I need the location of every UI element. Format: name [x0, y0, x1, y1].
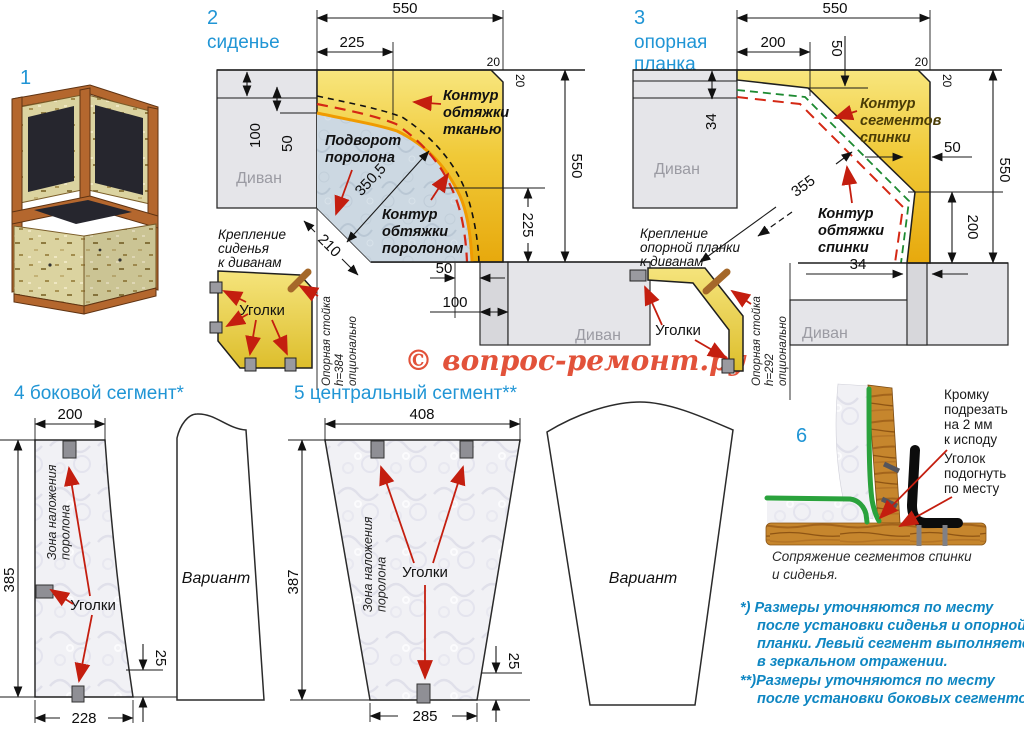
sofa-label: Диван	[654, 161, 700, 178]
corner-bracket	[36, 585, 53, 598]
svg-text:550: 550	[392, 0, 417, 17]
svg-text:20: 20	[513, 74, 527, 88]
inset-title: Крепление сиденья к диванам	[218, 227, 290, 270]
variant-label: Вариант	[182, 570, 250, 587]
section-3-support-plank: 3 опорная планка Диван Диван 550	[630, 0, 1013, 400]
corner-bracket	[72, 686, 84, 702]
furniture-blueprint-canvas: 1 2 сиденье Диван Ди	[0, 0, 1024, 739]
section-4-title: 4 боковой сегмент*	[14, 383, 185, 404]
corners-label: Уголки	[402, 564, 448, 581]
sofa-bottom-right-arm	[480, 262, 508, 345]
sofa-label: Диван	[236, 170, 282, 187]
corner-bracket	[210, 282, 222, 293]
svg-text:200: 200	[760, 34, 785, 51]
section-5-title: 5 центральный сегмент**	[294, 383, 518, 404]
svg-text:550: 550	[568, 153, 585, 178]
corner-bracket	[285, 358, 296, 371]
dim-550-right: 550	[565, 70, 585, 262]
svg-text:34: 34	[703, 113, 720, 130]
corners-label: Уголки	[70, 597, 116, 614]
svg-text:225: 225	[519, 212, 536, 237]
dim-550-right: 550	[993, 70, 1013, 263]
label-foam-fold: Подворот поролона	[325, 133, 405, 166]
section-2-number: 2	[207, 7, 218, 29]
svg-text:355: 355	[788, 172, 818, 200]
sofa-top-left	[633, 70, 737, 208]
corner-bracket	[417, 684, 430, 703]
arrow-to-cover-contour	[847, 167, 852, 203]
section-1-number: 1	[20, 67, 31, 89]
variant-label: Вариант	[609, 570, 677, 587]
support-leg-note: Опорная стойка h=384 опционально	[321, 293, 359, 386]
corner-bracket	[63, 441, 76, 458]
section-6-joint-detail: 6 Кромку подрезать на 2 мм к исподу Угол…	[766, 384, 1012, 582]
dim-387-left: 387	[285, 440, 302, 700]
central-segment-variant-outline	[547, 402, 733, 705]
sofa-top-left	[217, 70, 317, 208]
section-3-title: опорная планка	[634, 32, 713, 75]
label-back-cover-contour: Контур обтяжки спинки	[818, 206, 888, 256]
corner-bracket	[630, 270, 646, 281]
dim-25-offset: 25	[126, 644, 169, 722]
dim-200-top: 200	[35, 406, 105, 442]
side-segment-variant-outline	[177, 414, 264, 700]
label-bend-bracket: Уголок подогнуть по месту	[944, 451, 1010, 496]
dim-408-top: 408	[325, 406, 520, 442]
svg-text:25: 25	[505, 653, 522, 670]
label-back-segments-contour: Контур сегментов спинки	[860, 96, 945, 146]
section-6-number: 6	[796, 425, 807, 447]
watermark: © вопрос-ремонт.ру	[405, 344, 747, 377]
joint-caption: Сопряжение сегментов спинки и сиденья.	[772, 549, 975, 582]
svg-text:50: 50	[279, 135, 296, 152]
dim-385-left: 385	[1, 440, 18, 697]
dim-25-offset: 25	[481, 646, 522, 722]
corner-bracket	[245, 358, 256, 371]
svg-text:550: 550	[996, 157, 1013, 182]
dim-228-bottom: 228	[35, 700, 133, 727]
svg-text:50: 50	[944, 139, 961, 156]
footnotes: *) Размеры уточняются по месту после уст…	[740, 600, 1024, 707]
svg-text:34: 34	[850, 256, 867, 273]
sofa-label: Диван	[802, 325, 848, 342]
sofa-label: Диван	[575, 327, 621, 344]
svg-text:20: 20	[940, 74, 954, 88]
dim-285-bottom: 285	[370, 703, 477, 725]
corners-label: Уголки	[239, 302, 285, 319]
svg-text:20: 20	[487, 55, 501, 69]
support-leg-note: Опорная стойка h=292 опционально	[751, 293, 789, 386]
svg-text:228: 228	[71, 710, 96, 727]
svg-text:285: 285	[412, 708, 437, 725]
section-5-central-segment: 5 центральный сегмент** Зона наложения п…	[285, 383, 733, 725]
section-3-number: 3	[634, 7, 645, 29]
section-4-side-segment: 4 боковой сегмент* Зона наложения пороло…	[0, 383, 264, 727]
section-2-seat: 2 сиденье Диван Диван 550 225	[207, 0, 650, 390]
svg-text:25: 25	[152, 650, 169, 667]
inset-title: Крепление опорной планки к диванам	[640, 226, 744, 269]
svg-text:200: 200	[57, 406, 82, 423]
svg-text:225: 225	[339, 34, 364, 51]
corner-unit-3d-illustration	[12, 85, 158, 314]
svg-text:408: 408	[409, 406, 434, 423]
label-trim-edge: Кромку подрезать на 2 мм к исподу	[944, 387, 1012, 447]
corner-bracket	[371, 441, 384, 458]
svg-text:50: 50	[436, 260, 453, 277]
corner-bracket	[722, 359, 734, 373]
leader-dashed	[758, 212, 792, 236]
svg-text:20: 20	[915, 55, 929, 69]
svg-text:200: 200	[964, 214, 981, 239]
corner-bracket	[210, 322, 222, 333]
svg-text:100: 100	[442, 294, 467, 311]
svg-text:210: 210	[314, 231, 344, 261]
corner-bracket	[460, 441, 473, 458]
seat-foam	[767, 501, 867, 523]
svg-text:385: 385	[1, 567, 18, 592]
svg-text:50: 50	[828, 40, 845, 57]
section-1-overview: 1	[12, 67, 158, 314]
section-2-title: сиденье	[207, 32, 280, 53]
sofa-bottom-right-arm	[907, 263, 927, 345]
svg-text:550: 550	[822, 0, 847, 17]
svg-text:387: 387	[285, 569, 302, 594]
svg-text:100: 100	[247, 123, 264, 148]
